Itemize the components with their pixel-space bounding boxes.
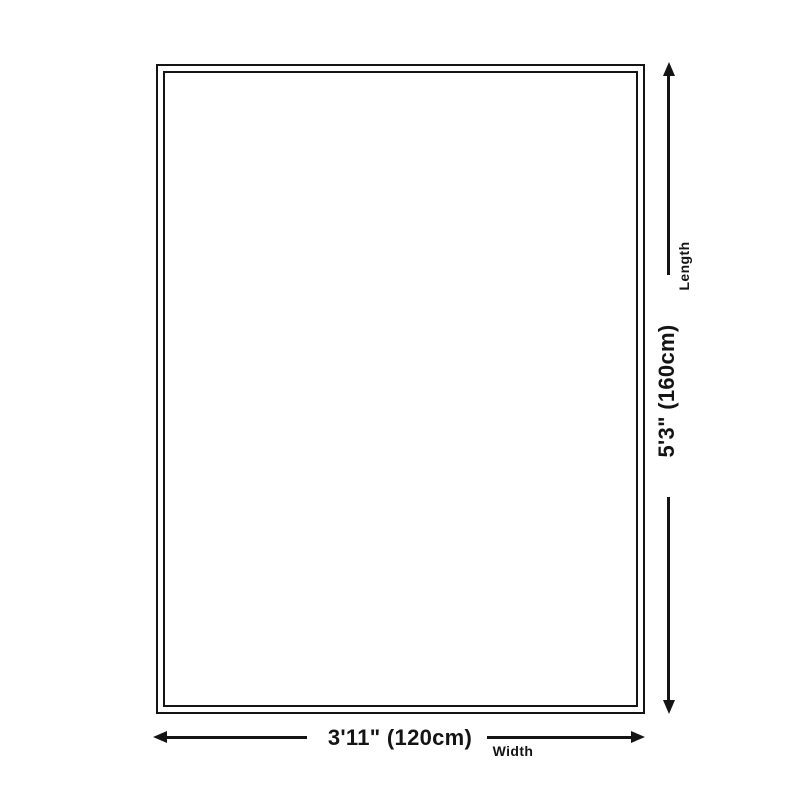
width-dimension-line-right <box>487 736 631 739</box>
length-dimension-line-bottom <box>667 497 670 700</box>
rug-outline-outer <box>156 64 645 714</box>
width-dimension-line-left <box>167 736 307 739</box>
width-label: Width <box>493 744 534 758</box>
length-value: 5'3" (160cm) <box>656 324 678 457</box>
arrow-down-icon <box>663 700 675 714</box>
arrow-up-icon <box>663 62 675 76</box>
rug-outline-inner <box>163 71 638 707</box>
length-dimension-line-top <box>667 75 670 275</box>
width-value: 3'11" (120cm) <box>328 727 472 749</box>
length-label: Length <box>677 241 691 290</box>
rug-size-diagram: Length 5'3" (160cm) 3'11" (120cm) Width <box>0 0 800 800</box>
arrow-right-icon <box>631 731 645 743</box>
arrow-left-icon <box>153 731 167 743</box>
